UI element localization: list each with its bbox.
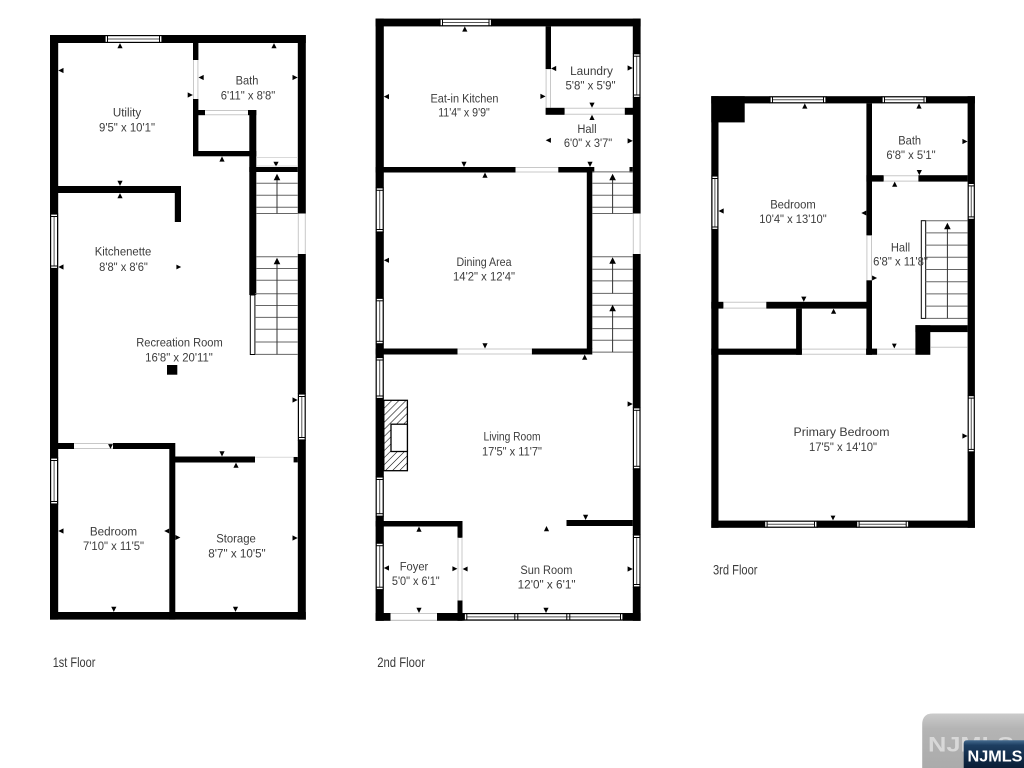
svg-text:Recreation Room: Recreation Room [136, 336, 223, 350]
svg-text:9'5" x 10'1": 9'5" x 10'1" [99, 121, 155, 135]
svg-text:8'8" x 8'6": 8'8" x 8'6" [99, 260, 148, 274]
svg-text:Dining Area: Dining Area [457, 255, 512, 269]
svg-text:17'5" x 11'7": 17'5" x 11'7" [482, 445, 542, 459]
svg-text:Primary Bedroom: Primary Bedroom [794, 425, 890, 439]
svg-text:8'7" x 10'5": 8'7" x 10'5" [208, 547, 265, 561]
svg-text:Hall: Hall [577, 122, 596, 136]
svg-text:12'0" x 6'1": 12'0" x 6'1" [518, 578, 576, 592]
svg-text:Bath: Bath [898, 134, 921, 148]
svg-text:Bedroom: Bedroom [770, 198, 816, 212]
svg-text:NJMLS: NJMLS [968, 749, 1023, 766]
svg-text:5'0" x 6'1": 5'0" x 6'1" [392, 574, 440, 588]
svg-text:5'8" x 5'9": 5'8" x 5'9" [565, 79, 615, 93]
svg-text:11'4" x 9'9": 11'4" x 9'9" [438, 106, 490, 120]
svg-text:6'8" x 5'1": 6'8" x 5'1" [886, 148, 935, 162]
svg-text:6'11" x 8'8": 6'11" x 8'8" [221, 89, 276, 103]
svg-text:10'4" x 13'10": 10'4" x 13'10" [759, 212, 826, 226]
svg-text:17'5" x 14'10": 17'5" x 14'10" [809, 440, 877, 454]
svg-text:7'10" x 11'5": 7'10" x 11'5" [83, 539, 144, 553]
svg-text:Hall: Hall [891, 241, 910, 255]
svg-text:Bedroom: Bedroom [90, 525, 137, 539]
svg-text:Living Room: Living Room [484, 430, 541, 444]
svg-text:6'8" x 11'8": 6'8" x 11'8" [873, 255, 928, 269]
svg-text:16'8" x 20'11": 16'8" x 20'11" [145, 351, 213, 365]
svg-text:Sun Room: Sun Room [520, 563, 572, 577]
svg-text:2nd Floor: 2nd Floor [377, 655, 425, 670]
svg-text:Foyer: Foyer [400, 560, 429, 574]
svg-text:3rd Floor: 3rd Floor [713, 563, 758, 578]
svg-text:Storage: Storage [216, 532, 256, 546]
svg-text:6'0" x 3'7": 6'0" x 3'7" [564, 136, 612, 150]
svg-text:Eat-in Kitchen: Eat-in Kitchen [431, 92, 499, 106]
svg-text:Utility: Utility [113, 106, 142, 120]
svg-text:Laundry: Laundry [570, 64, 614, 78]
svg-text:14'2" x 12'4": 14'2" x 12'4" [453, 270, 515, 284]
svg-text:Kitchenette: Kitchenette [95, 245, 152, 259]
svg-text:Bath: Bath [236, 74, 259, 88]
svg-text:1st Floor: 1st Floor [53, 655, 96, 670]
